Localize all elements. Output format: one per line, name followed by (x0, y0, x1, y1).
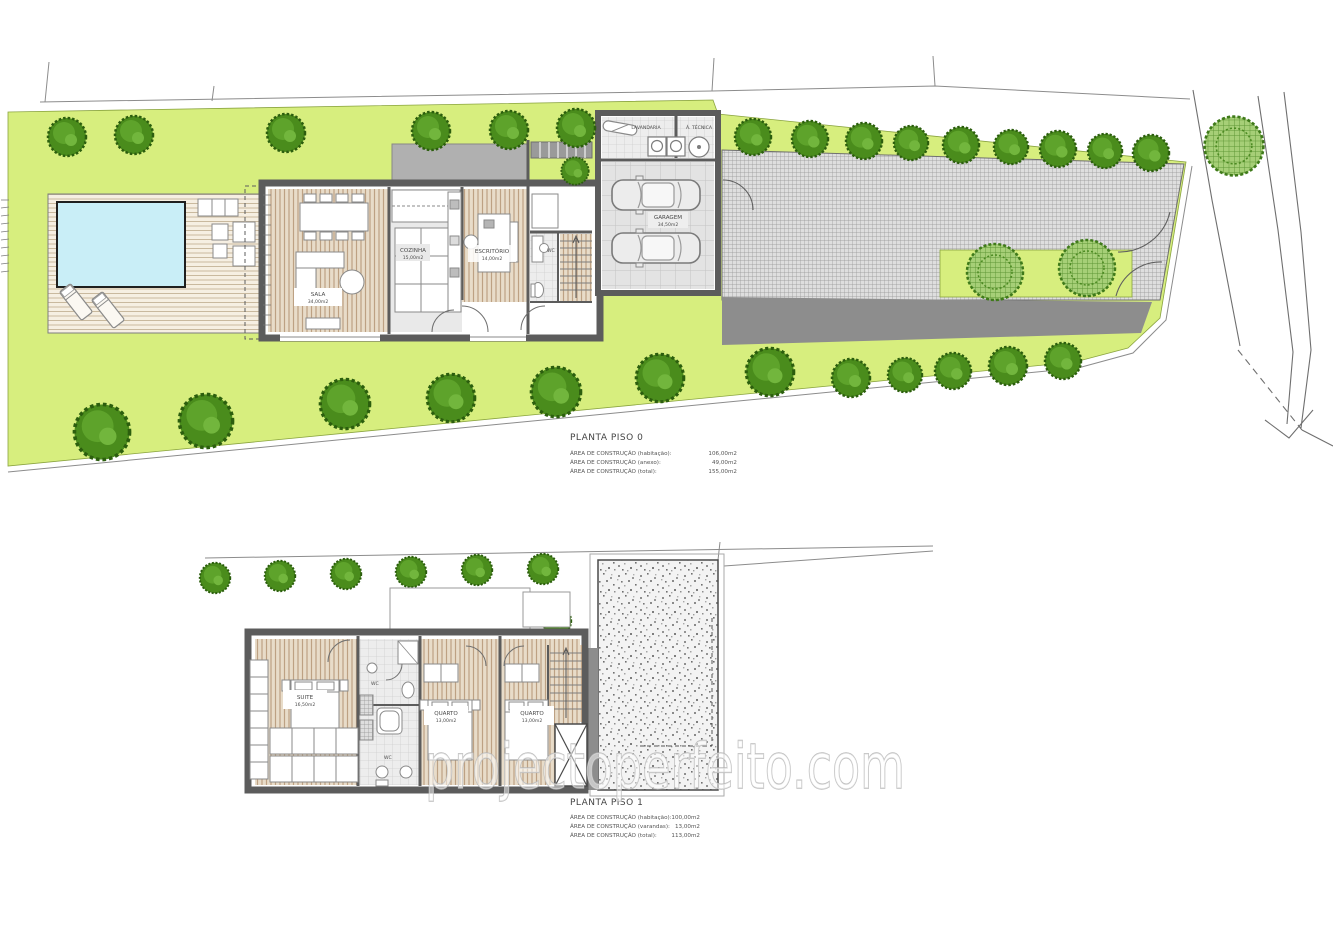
plan1-area-label-0: ÁREA DE CONSTRUÇÃO (habitação): (570, 814, 672, 821)
tree-icon (115, 116, 153, 154)
wc1-label: WC (371, 681, 379, 687)
plan0-area-label-1: ÁREA DE CONSTRUÇÃO (anexo): (570, 459, 661, 466)
plan0-area-value-2: 155,00m2 (708, 469, 737, 475)
garagem-label: GARAGEM (654, 215, 682, 221)
tree-icon (200, 563, 230, 593)
garage-block: LAVANDARIA Á. TÉCNICA GARAGEM 34,50m2 (598, 113, 718, 293)
suite-label: SUITE (297, 695, 314, 701)
tree-icon (320, 379, 369, 428)
tree-icon (1045, 343, 1081, 379)
plan0-title: PLANTA PISO 0 (570, 433, 643, 443)
escritorio-area: 14,00m2 (482, 256, 503, 262)
cozinha-label: COZINHA (400, 248, 426, 254)
tree-icon (994, 130, 1028, 164)
tree-icon (846, 123, 882, 159)
tree-icon (267, 114, 305, 152)
quarto1-label: QUARTO (434, 711, 458, 717)
tree-icon (888, 358, 922, 392)
plan1-area-label-1: ÁREA DE CONSTRUÇÃO (varandas): (570, 823, 670, 830)
tree-icon (1059, 240, 1115, 296)
plan1-area-value-0: 100,00m2 (671, 815, 700, 821)
escritorio-label: ESCRITÓRIO (475, 248, 510, 255)
tree-icon (1088, 134, 1122, 168)
floor-plan-drawing: SALA 34,00m2 COZINHA 15,00m2 ESCRITÓRIO … (0, 0, 1333, 930)
tree-icon (792, 121, 828, 157)
balcony-cells (250, 660, 268, 779)
tree-icon (396, 557, 426, 587)
car-icon (612, 176, 700, 214)
tree-icon (943, 127, 979, 163)
wc2-label: WC (384, 755, 392, 761)
driveway (722, 150, 1184, 345)
house-piso0: SALA 34,00m2 COZINHA 15,00m2 ESCRITÓRIO … (262, 183, 600, 341)
coffee-table (340, 270, 364, 294)
quarto1-area: 13,00m2 (436, 718, 457, 724)
tree-icon (179, 394, 232, 447)
tree-icon (746, 348, 794, 396)
tree-icon (462, 555, 492, 585)
tree-icon (490, 111, 528, 149)
tree-icon (832, 359, 870, 397)
tree-icon (557, 109, 595, 147)
quarto2-area: 13,00m2 (522, 718, 543, 724)
tree-icon (531, 367, 580, 416)
quarto2-label: QUARTO (520, 711, 544, 717)
plan1-area-label-2: ÁREA DE CONSTRUÇÃO (total): (570, 832, 657, 839)
tree-icon (1133, 135, 1169, 171)
lavandaria-label: LAVANDARIA (631, 125, 661, 131)
stairs-piso1 (550, 645, 582, 722)
cozinha-area: 15,00m2 (403, 255, 424, 261)
floor-plan-piso1: SUITE 16,50m2 WC QUARTO 13,00m2 QUARTO 1… (200, 542, 933, 839)
suite-area: 16,50m2 (295, 702, 316, 708)
tree-icon (331, 559, 361, 589)
tree-icon (1040, 131, 1076, 167)
garagem-area: 34,50m2 (658, 222, 679, 228)
tree-icon (412, 112, 450, 150)
plan0-area-value-0: 106,00m2 (708, 451, 737, 457)
tree-icon (265, 561, 295, 591)
car-icon (612, 229, 700, 267)
pool-deck (48, 186, 267, 339)
tree-icon (427, 374, 475, 422)
site-plan-piso0: SALA 34,00m2 COZINHA 15,00m2 ESCRITÓRIO … (1, 56, 1333, 475)
tree-icon (967, 244, 1023, 300)
plan1-area-value-2: 113,00m2 (671, 833, 700, 839)
plan0-area-label-2: ÁREA DE CONSTRUÇÃO (total): (570, 468, 657, 475)
plan0-area-value-1: 49,00m2 (712, 460, 737, 466)
hall-closet (532, 194, 558, 228)
architectural-drawing-page: SALA 34,00m2 COZINHA 15,00m2 ESCRITÓRIO … (0, 0, 1333, 930)
tree-icon (935, 353, 971, 389)
canopy-roof (392, 144, 528, 185)
caption-piso0: PLANTA PISO 0 ÁREA DE CONSTRUÇÃO (habita… (570, 433, 737, 475)
sala-label: SALA (311, 292, 326, 298)
caption-piso1: PLANTA PISO 1 ÁREA DE CONSTRUÇÃO (habita… (570, 798, 700, 839)
tree-icon (48, 118, 86, 156)
tv-cabinet (306, 318, 340, 329)
tree-icon (894, 126, 928, 160)
tree-icon (74, 404, 129, 459)
tree-icon (561, 157, 588, 184)
tree-icon (735, 119, 771, 155)
washing-machines (648, 137, 685, 156)
pool (57, 202, 185, 287)
sala-area: 34,00m2 (308, 299, 329, 305)
survey-lines-piso1 (205, 542, 933, 566)
water-heater (689, 137, 709, 157)
wc0-label: WC (547, 248, 555, 254)
tree-icon (989, 347, 1027, 385)
plan1-area-value-1: 13,00m2 (675, 824, 700, 830)
tree-icon (1205, 117, 1264, 176)
watermark: projectoperfeito.com (425, 730, 905, 803)
plan0-area-label-0: ÁREA DE CONSTRUÇÃO (habitação): (570, 450, 672, 457)
tree-icon (528, 554, 558, 584)
tree-icon (636, 354, 684, 402)
